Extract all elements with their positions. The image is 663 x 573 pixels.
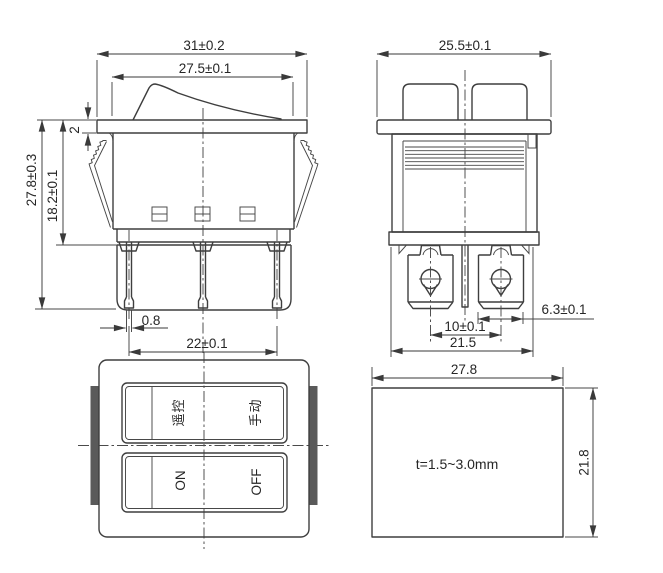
rocker1-left-label: 遥控 [172,398,187,426]
mounting-flange-side [377,120,551,134]
dim-body-height-label: 18.2±0.1 [45,170,60,222]
latch-hook-left [399,245,407,254]
dim-cutout-width: 27.8 [372,362,563,386]
dim-pin-thickness-label: 0.8 [142,313,161,328]
dim-base-width-label: 21.5 [450,335,476,350]
dim-total-height-label: 27.8±0.3 [24,154,39,206]
vent-slots [152,207,255,221]
rocker-1: 遥控 手动 [122,383,287,443]
rocker2-left-label: ON [173,470,188,490]
latch-hook-right [522,245,530,254]
drawing-canvas: 31±0.2 27.5±0.1 2 18.2±0.1 27.8±0.3 [0,0,663,573]
mounting-clip-left [89,141,112,228]
rocker-button-right [472,84,527,120]
switch-body-front [113,133,294,229]
panel-clip-right [309,386,318,505]
base-band-side [389,232,539,245]
side-view: 25.5±0.1 6.3±0.1 10±0.1 21.5 [377,38,594,357]
cutout-view: t=1.5~3.0mm 27.8 21.8 [372,362,598,537]
dim-width-outer: 31±0.2 [97,38,307,117]
top-view: 遥控 手动 ON OFF [78,352,331,549]
dim-flange-thickness: 2 [37,102,96,151]
dim-pin-span-label: 22±0.1 [186,336,227,351]
mounting-clip-right [295,141,318,228]
rocker2-right-label: OFF [249,469,264,496]
rocker-2: ON OFF [122,453,287,512]
dim-pin-thickness: 0.8 [100,310,168,332]
front-view: 31±0.2 27.5±0.1 2 18.2±0.1 27.8±0.3 [24,38,318,356]
terminal-housing [117,245,291,310]
grip-ridges [405,147,524,169]
dim-width-outer-label: 31±0.2 [183,38,224,53]
dim-total-height: 27.8±0.3 [24,120,116,309]
dim-cutout-height: 21.8 [565,388,598,537]
panel-clip-left [91,386,100,505]
dim-terminal-width: 6.3±0.1 [478,302,594,324]
dim-terminal-width-label: 6.3±0.1 [542,302,587,317]
dim-flange-label: 2 [67,126,82,134]
dim-width-rocker-label: 27.5±0.1 [179,61,231,76]
rocker-profile [133,84,281,120]
dim-cutout-width-label: 27.8 [451,362,477,377]
rocker1-right-label: 手动 [249,398,264,426]
dim-side-width-label: 25.5±0.1 [439,38,491,53]
switch-body-side [392,134,537,232]
technical-drawing: 31±0.2 27.5±0.1 2 18.2±0.1 27.8±0.3 [0,0,663,573]
dim-cutout-height-label: 21.8 [577,449,592,475]
panel-thickness-note: t=1.5~3.0mm [416,456,499,472]
dim-screw-span-label: 10±0.1 [444,319,485,334]
rocker-button-left [403,84,458,120]
dim-screw-span: 10±0.1 [431,319,502,335]
side-notch [528,134,536,148]
base-band-front [117,229,290,242]
flange-body-fillet [109,133,298,142]
mounting-flange-front [97,120,307,133]
